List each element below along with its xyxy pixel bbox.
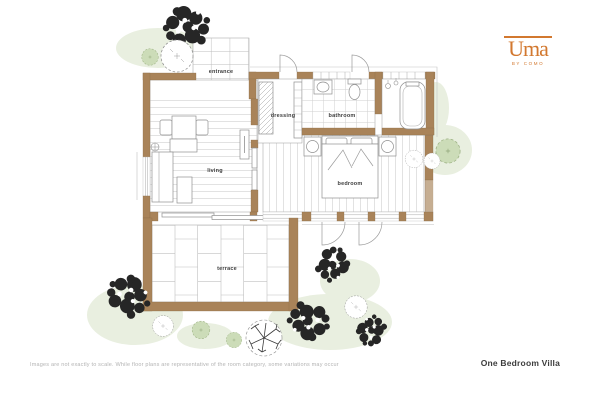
brand-logo: Uma BY COMO — [504, 36, 552, 66]
room-bathroom — [302, 72, 382, 135]
bush-icon — [192, 321, 210, 339]
wall — [251, 190, 258, 212]
window — [313, 72, 350, 79]
wall — [375, 72, 382, 114]
shrub-icon — [345, 296, 367, 318]
window — [383, 72, 425, 79]
shrub-icon — [153, 316, 174, 337]
plan-title: One Bedroom Villa — [481, 358, 560, 368]
brand-tagline: BY COMO — [504, 61, 552, 66]
nightstand-icon — [304, 137, 321, 156]
room-living — [137, 72, 264, 221]
room-terrace — [143, 218, 298, 311]
shrub-icon — [424, 153, 440, 169]
room-label-bedroom: bedroom — [338, 181, 363, 187]
room-label-bathroom: bathroom — [329, 113, 356, 119]
shrub-icon — [405, 150, 423, 168]
room-label-living: living — [207, 168, 223, 174]
wall — [143, 73, 150, 157]
wall — [143, 196, 150, 218]
palm-tree-icon — [246, 320, 282, 356]
wall — [426, 72, 434, 135]
floor-plan-page: entrance dressing bathroom living bedroo… — [0, 0, 600, 408]
wall — [302, 128, 375, 135]
wardrobe-icon — [259, 82, 273, 134]
disclaimer-text: Images are not exactly to scale. While f… — [30, 362, 339, 368]
closet-icon — [294, 82, 302, 138]
window — [263, 212, 433, 221]
wall — [251, 140, 258, 148]
bush-icon — [142, 49, 159, 66]
bed-icon — [322, 136, 378, 198]
room-label-entrance: entrance — [209, 69, 234, 75]
bush-icon — [226, 332, 241, 347]
room-label-dressing: dressing — [271, 113, 296, 119]
wall — [289, 218, 298, 311]
toilet-icon — [348, 79, 361, 100]
glass-panel — [252, 148, 257, 168]
shrub-icon — [161, 40, 193, 72]
wall — [143, 73, 196, 80]
wall — [143, 302, 298, 311]
bathtub-icon — [400, 82, 425, 129]
sink-icon — [314, 80, 332, 94]
brand-name: Uma — [504, 36, 552, 60]
room-bath-tub — [382, 72, 434, 135]
window — [143, 157, 150, 196]
room-dressing — [258, 79, 302, 143]
wall — [251, 99, 258, 125]
nightstand-icon — [379, 137, 396, 156]
room-label-terrace: terrace — [217, 266, 237, 272]
wall — [425, 180, 433, 212]
tv-console-icon — [240, 130, 249, 159]
glass-panel — [252, 170, 257, 190]
sofa-icon — [152, 152, 173, 202]
coffee-table-icon — [177, 177, 192, 203]
light-symbol-icon — [151, 143, 159, 151]
